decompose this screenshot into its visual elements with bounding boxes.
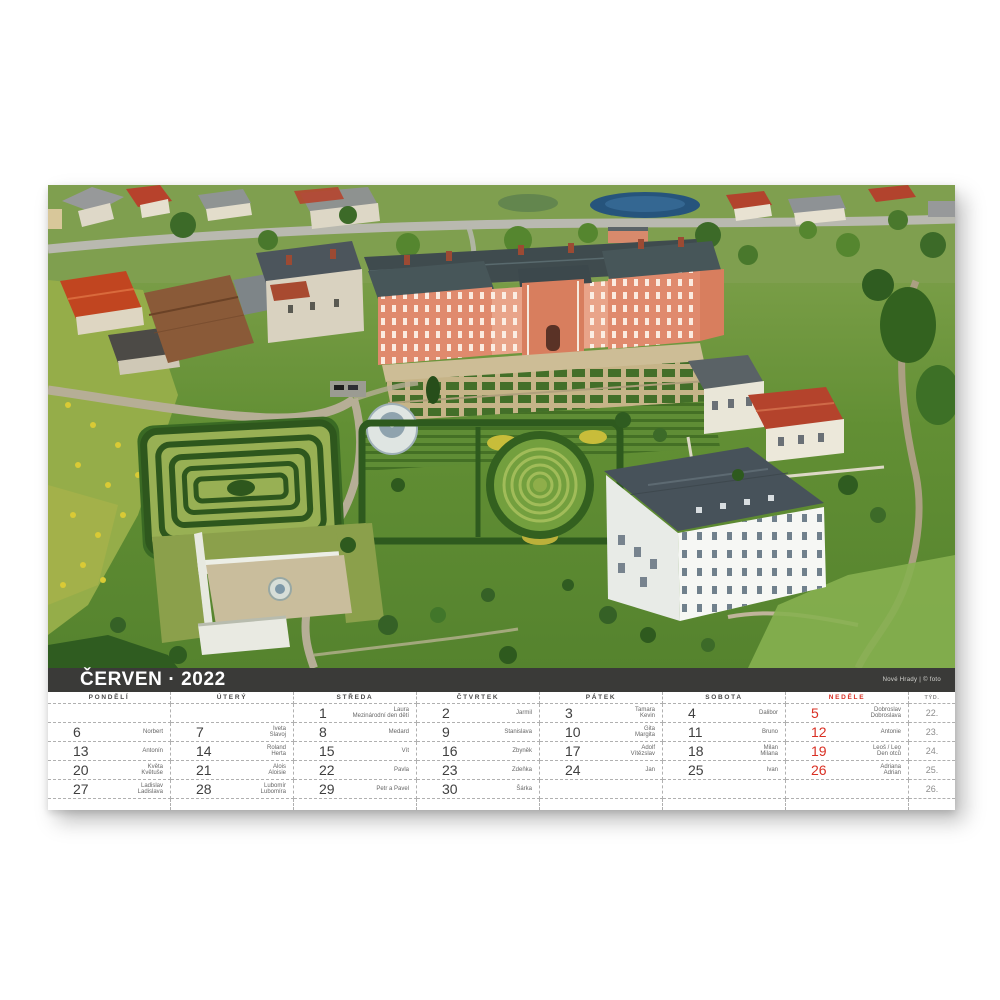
- day-cell: 10GitaMargita: [540, 723, 663, 742]
- day-header: ČTVRTEK: [417, 692, 540, 704]
- day-cell: 16Zbyněk: [417, 742, 540, 761]
- empty-row-cell: [663, 799, 786, 810]
- title-bar: ČERVEN · 2022 Nové Hrady | © foto: [48, 668, 955, 692]
- empty-day-cell: [171, 704, 294, 723]
- name-day: KvětaKvětuše: [141, 764, 163, 777]
- day-cell: 3TamaraKevin: [540, 704, 663, 723]
- day-number: 28: [196, 782, 212, 796]
- name-day: Petr a Pavel: [376, 786, 409, 793]
- day-number: 26: [811, 763, 827, 777]
- day-number: 6: [73, 725, 81, 739]
- day-cell: 2Jarmil: [417, 704, 540, 723]
- day-cell: 8Medard: [294, 723, 417, 742]
- name-day: Medard: [389, 729, 409, 736]
- day-cell: 13Antonín: [48, 742, 171, 761]
- day-number: 12: [811, 725, 827, 739]
- name-day: AloisAloisie: [268, 764, 286, 777]
- day-number: 23: [442, 763, 458, 777]
- chateau: [364, 237, 724, 383]
- name-day: AdolfVítězslav: [631, 745, 655, 758]
- name-day: Jan: [645, 767, 655, 774]
- week-number: 25.: [909, 761, 955, 780]
- day-number: 19: [811, 744, 827, 758]
- day-cell: 20KvětaKvětuše: [48, 761, 171, 780]
- day-header: NEDĚLE: [786, 692, 909, 704]
- day-cell: 5DobroslavDobroslava: [786, 704, 909, 723]
- day-number: 13: [73, 744, 89, 758]
- day-cell: 21AloisAloisie: [171, 761, 294, 780]
- day-number: 27: [73, 782, 89, 796]
- day-number: 3: [565, 706, 573, 720]
- day-cell: 24Jan: [540, 761, 663, 780]
- name-day: Vít: [402, 748, 409, 755]
- day-number: 2: [442, 706, 450, 720]
- day-cell: 22Pavla: [294, 761, 417, 780]
- name-day: Zdeňka: [512, 767, 532, 774]
- garden-gazebo: [367, 404, 417, 454]
- day-header: PÁTEK: [540, 692, 663, 704]
- day-cell: 15Vít: [294, 742, 417, 761]
- day-number: 11: [688, 725, 703, 739]
- day-cell: 11Bruno: [663, 723, 786, 742]
- day-header: STŘEDA: [294, 692, 417, 704]
- day-cell: 17AdolfVítězslav: [540, 742, 663, 761]
- name-day: LadislavLadislava: [138, 783, 163, 796]
- name-day: Leoš / LeoDen otců: [873, 745, 901, 758]
- empty-day-cell: [48, 704, 171, 723]
- calendar-sheet: ČERVEN · 2022 Nové Hrady | © foto PONDĚL…: [48, 185, 955, 810]
- empty-row-cell: [786, 799, 909, 810]
- day-number: 4: [688, 706, 696, 720]
- day-cell: 28LubomírLubomíra: [171, 780, 294, 799]
- photo-credit: Nové Hrady | © foto: [883, 677, 941, 683]
- day-number: 29: [319, 782, 335, 796]
- week-number: 23.: [909, 723, 955, 742]
- name-day: DobroslavDobroslava: [871, 707, 901, 720]
- day-number: 18: [688, 744, 704, 758]
- day-cell: 1LauraMezinárodní den dětí: [294, 704, 417, 723]
- name-day: AdrianaAdrian: [880, 764, 901, 777]
- name-day: Stanislava: [504, 729, 532, 736]
- name-day: Zbyněk: [512, 748, 532, 755]
- name-day: Dalibor: [759, 710, 778, 717]
- day-cell: 30Šárka: [417, 780, 540, 799]
- day-number: 20: [73, 763, 89, 777]
- day-cell: 14RolandHerta: [171, 742, 294, 761]
- day-cell: 7IvetaSlavoj: [171, 723, 294, 742]
- week-col-header: TÝD.: [909, 692, 955, 704]
- calendar-grid: PONDĚLÍÚTERÝSTŘEDAČTVRTEKPÁTEKSOBOTANEDĚ…: [48, 692, 955, 810]
- day-number: 9: [442, 725, 450, 739]
- west-wing: [256, 241, 364, 343]
- name-day: LauraMezinárodní den dětí: [353, 707, 409, 720]
- empty-day-cell: [786, 780, 909, 799]
- empty-row-cell: [294, 799, 417, 810]
- week-number: 22.: [909, 704, 955, 723]
- name-day: Pavla: [394, 767, 409, 774]
- empty-row-cell: [909, 799, 955, 810]
- empty-row-cell: [540, 799, 663, 810]
- day-number: 1: [319, 706, 327, 720]
- name-day: RolandHerta: [267, 745, 286, 758]
- day-cell: 23Zdeňka: [417, 761, 540, 780]
- name-day: IvetaSlavoj: [270, 726, 286, 739]
- day-number: 21: [196, 763, 212, 777]
- week-number: 24.: [909, 742, 955, 761]
- day-number: 16: [442, 744, 458, 758]
- day-number: 22: [319, 763, 335, 777]
- day-cell: 9Stanislava: [417, 723, 540, 742]
- name-day: TamaraKevin: [635, 707, 655, 720]
- calendar-photo: [48, 185, 955, 668]
- day-number: 7: [196, 725, 204, 739]
- day-cell: 12Antonie: [786, 723, 909, 742]
- name-day: Bruno: [762, 729, 778, 736]
- day-cell: 29Petr a Pavel: [294, 780, 417, 799]
- name-day: Šárka: [516, 786, 532, 793]
- month-title: ČERVEN · 2022: [80, 669, 226, 691]
- day-number: 25: [688, 763, 704, 777]
- name-day: GitaMargita: [635, 726, 655, 739]
- name-day: Ivan: [767, 767, 778, 774]
- day-cell: 4Dalibor: [663, 704, 786, 723]
- name-day: Jarmil: [516, 710, 532, 717]
- day-header: PONDĚLÍ: [48, 692, 171, 704]
- name-day: LubomírLubomíra: [261, 783, 286, 796]
- empty-day-cell: [663, 780, 786, 799]
- empty-row-cell: [48, 799, 171, 810]
- day-header: SOBOTA: [663, 692, 786, 704]
- day-number: 5: [811, 706, 819, 720]
- day-number: 24: [565, 763, 581, 777]
- name-day: MilanMilana: [760, 745, 778, 758]
- name-day: Antonie: [881, 729, 901, 736]
- day-cell: 6Norbert: [48, 723, 171, 742]
- empty-day-cell: [540, 780, 663, 799]
- day-number: 10: [565, 725, 581, 739]
- day-number: 8: [319, 725, 327, 739]
- day-cell: 26AdrianaAdrian: [786, 761, 909, 780]
- day-number: 30: [442, 782, 458, 796]
- name-day: Antonín: [142, 748, 163, 755]
- day-cell: 25Ivan: [663, 761, 786, 780]
- day-cell: 19Leoš / LeoDen otců: [786, 742, 909, 761]
- day-cell: 18MilanMilana: [663, 742, 786, 761]
- day-number: 17: [565, 744, 581, 758]
- week-number: 26.: [909, 780, 955, 799]
- empty-row-cell: [417, 799, 540, 810]
- day-cell: 27LadislavLadislava: [48, 780, 171, 799]
- name-day: Norbert: [143, 729, 163, 736]
- day-number: 15: [319, 744, 335, 758]
- day-number: 14: [196, 744, 212, 758]
- day-header: ÚTERÝ: [171, 692, 294, 704]
- empty-row-cell: [171, 799, 294, 810]
